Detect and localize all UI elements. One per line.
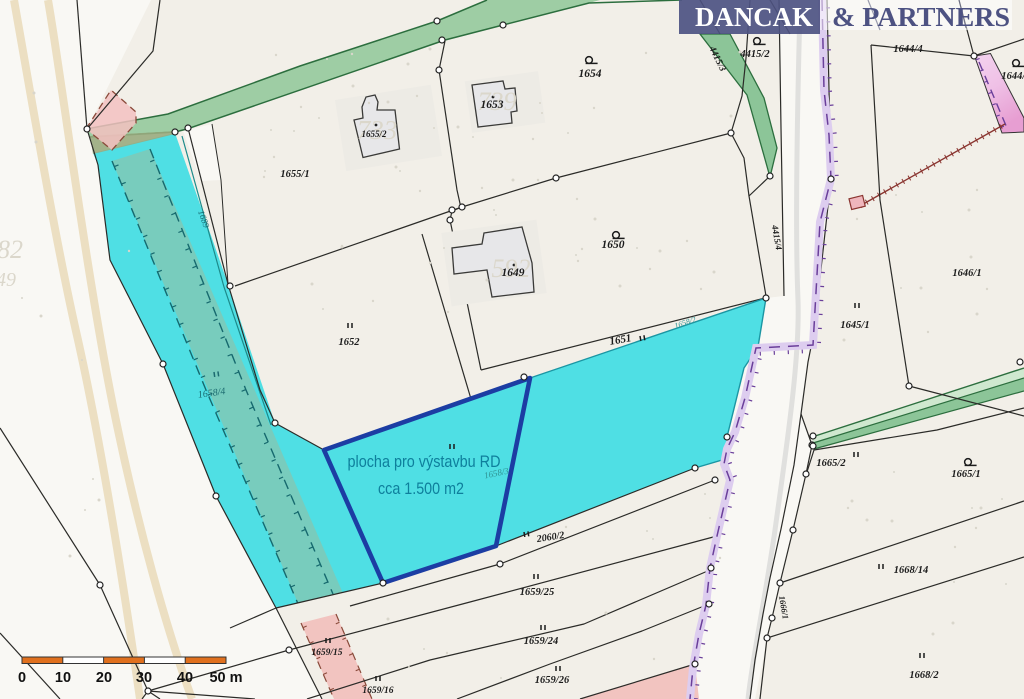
svg-text:1668/14: 1668/14	[894, 565, 928, 576]
svg-text:20: 20	[96, 670, 112, 686]
svg-text:4415/2: 4415/2	[739, 49, 770, 60]
svg-text:1655/2: 1655/2	[361, 129, 387, 139]
svg-text:1665/1: 1665/1	[951, 469, 980, 480]
svg-text:1644/4: 1644/4	[893, 44, 922, 55]
svg-text:1659/15: 1659/15	[311, 648, 342, 658]
svg-text:1659/26: 1659/26	[535, 675, 570, 686]
svg-text:30: 30	[136, 670, 152, 686]
svg-text:0: 0	[18, 670, 26, 686]
svg-text:1644/6: 1644/6	[1001, 71, 1024, 82]
svg-text:1659/24: 1659/24	[524, 636, 558, 647]
svg-text:1650: 1650	[602, 239, 625, 251]
svg-text:1649: 1649	[502, 267, 525, 279]
svg-text:10: 10	[55, 670, 71, 686]
svg-text:1659/25: 1659/25	[520, 587, 554, 598]
svg-text:49: 49	[0, 269, 16, 291]
svg-text:1652: 1652	[339, 337, 361, 348]
svg-text:& PARTNERS: & PARTNERS	[832, 2, 1010, 32]
svg-text:40: 40	[177, 670, 193, 686]
svg-text:cca 1.500 m2: cca 1.500 m2	[378, 479, 464, 498]
svg-text:1668/2: 1668/2	[909, 670, 939, 681]
svg-text:plocha pro výstavbu RD: plocha pro výstavbu RD	[348, 452, 501, 471]
svg-text:1654: 1654	[579, 68, 602, 80]
svg-text:50 m: 50 m	[209, 670, 242, 686]
svg-text:1659/16: 1659/16	[362, 686, 393, 696]
svg-text:82: 82	[0, 235, 23, 264]
svg-text:1655/1: 1655/1	[280, 169, 309, 180]
svg-text:1646/1: 1646/1	[952, 268, 981, 279]
svg-text:1645/1: 1645/1	[840, 320, 869, 331]
svg-text:1665/2: 1665/2	[816, 458, 846, 469]
svg-text:DANCAK: DANCAK	[695, 2, 813, 32]
svg-text:1653: 1653	[481, 99, 504, 111]
